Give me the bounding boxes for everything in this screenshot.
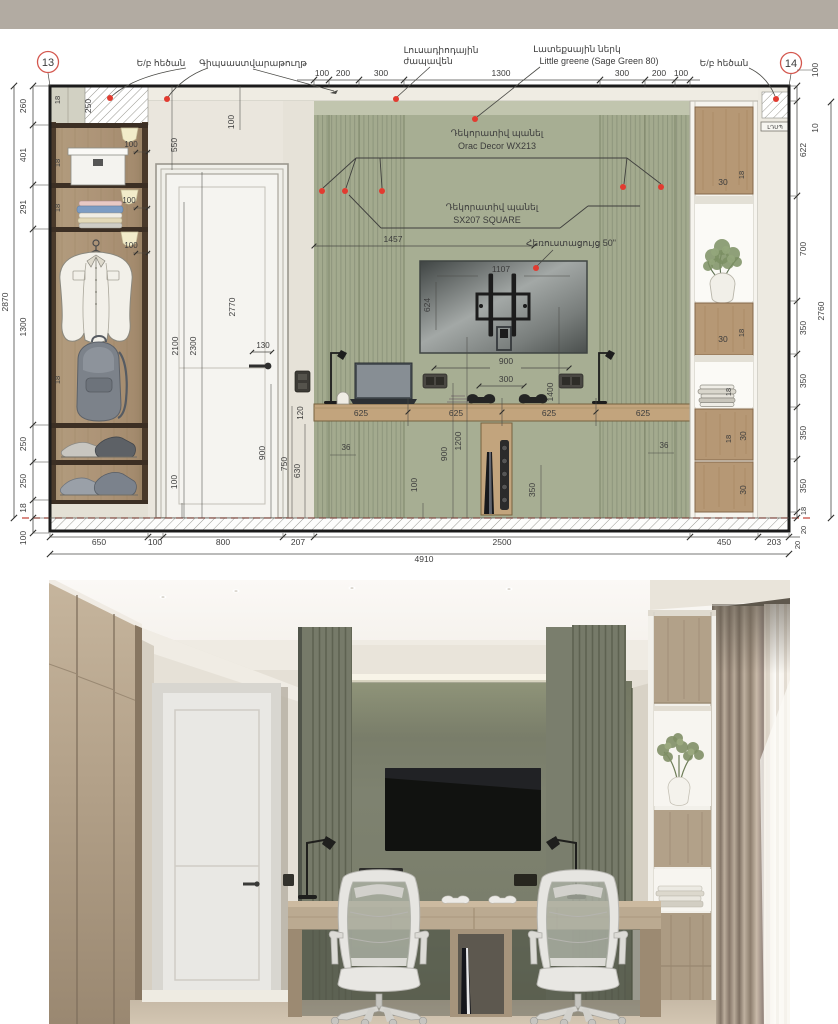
svg-text:Գիպսաստվարաթուղթ: Գիպսաստվարաթուղթ (199, 58, 307, 68)
svg-text:900: 900 (257, 446, 267, 460)
svg-text:250: 250 (83, 99, 93, 113)
svg-text:900: 900 (439, 447, 449, 461)
svg-text:1457: 1457 (384, 234, 403, 244)
svg-text:100: 100 (18, 531, 28, 545)
svg-text:2870: 2870 (0, 292, 10, 311)
svg-text:4910: 4910 (415, 554, 434, 564)
svg-text:130: 130 (256, 341, 270, 350)
svg-text:Լատեքսային ներկ: Լատեքսային ներկ (533, 44, 620, 54)
svg-text:30: 30 (718, 334, 728, 344)
svg-text:203: 203 (767, 537, 781, 547)
svg-text:30: 30 (738, 485, 748, 495)
svg-text:14: 14 (785, 58, 797, 70)
svg-text:13: 13 (42, 57, 54, 69)
svg-text:100: 100 (124, 140, 138, 149)
svg-text:Դեկորատիվ պանել: Դեկորատիվ պանել (446, 202, 539, 212)
svg-text:200: 200 (336, 68, 350, 78)
svg-text:18: 18 (53, 204, 62, 212)
svg-text:625: 625 (354, 408, 368, 418)
svg-text:750: 750 (279, 457, 289, 471)
svg-text:700: 700 (798, 242, 808, 256)
svg-text:300: 300 (374, 68, 388, 78)
svg-text:ժապավեն: ժապավեն (403, 56, 452, 66)
svg-text:18: 18 (53, 159, 62, 167)
svg-text:2300: 2300 (188, 336, 198, 355)
svg-text:200: 200 (652, 68, 666, 78)
svg-text:250: 250 (18, 474, 28, 488)
svg-text:550: 550 (169, 138, 179, 152)
svg-text:18: 18 (724, 435, 733, 443)
svg-text:Լուսադիոդային: Լուսադիոդային (404, 45, 479, 55)
svg-text:100: 100 (409, 478, 419, 492)
svg-text:625: 625 (636, 408, 650, 418)
svg-text:630: 630 (292, 464, 302, 478)
svg-text:625: 625 (449, 408, 463, 418)
svg-text:36: 36 (342, 443, 351, 452)
svg-text:350: 350 (798, 479, 808, 493)
svg-text:SX207 SQUARE: SX207 SQUARE (453, 215, 521, 225)
svg-text:1300: 1300 (492, 68, 511, 78)
svg-text:30: 30 (738, 431, 748, 441)
svg-text:800: 800 (216, 537, 230, 547)
svg-text:18: 18 (737, 171, 746, 179)
svg-text:120: 120 (296, 406, 305, 420)
svg-text:624: 624 (422, 298, 432, 312)
svg-text:1300: 1300 (18, 317, 28, 336)
svg-text:Դեկորատիվ պանել: Դեկորատիվ պանել (451, 128, 544, 138)
svg-text:100: 100 (315, 68, 329, 78)
svg-text:2500: 2500 (493, 537, 512, 547)
svg-text:300: 300 (615, 68, 629, 78)
svg-text:1107: 1107 (492, 264, 511, 274)
svg-text:100: 100 (148, 537, 162, 547)
svg-text:300: 300 (499, 374, 513, 384)
svg-text:Ե/բ հեծան: Ե/բ հեծան (700, 58, 749, 68)
svg-text:250: 250 (18, 437, 28, 451)
svg-text:625: 625 (542, 408, 556, 418)
svg-text:Little greene (Sage Green 80): Little greene (Sage Green 80) (539, 56, 658, 66)
svg-text:207: 207 (291, 537, 305, 547)
svg-text:350: 350 (798, 426, 808, 440)
svg-text:Orac Decor WX213: Orac Decor WX213 (458, 141, 536, 151)
svg-text:18: 18 (53, 376, 62, 384)
svg-text:100: 100 (124, 241, 138, 250)
svg-text:100: 100 (674, 68, 688, 78)
svg-text:18: 18 (724, 388, 733, 396)
svg-text:622: 622 (798, 143, 808, 157)
svg-text:2760: 2760 (816, 301, 826, 320)
svg-text:18: 18 (53, 96, 62, 104)
svg-text:1200: 1200 (453, 431, 463, 450)
svg-text:20: 20 (793, 541, 802, 549)
svg-text:18: 18 (799, 507, 808, 515)
svg-text:450: 450 (717, 537, 731, 547)
svg-text:260: 260 (18, 99, 28, 113)
svg-text:Հեռուստացույց 50": Հեռուստացույց 50" (526, 238, 616, 248)
svg-text:36: 36 (660, 441, 669, 450)
svg-text:291: 291 (18, 200, 28, 214)
svg-text:100: 100 (169, 475, 179, 489)
svg-text:1400: 1400 (545, 382, 555, 401)
svg-text:30: 30 (718, 177, 728, 187)
svg-text:10: 10 (810, 123, 820, 133)
svg-text:2770: 2770 (227, 297, 237, 316)
svg-text:900: 900 (499, 356, 513, 366)
svg-text:401: 401 (18, 148, 28, 162)
svg-text:350: 350 (527, 483, 537, 497)
svg-text:350: 350 (798, 374, 808, 388)
svg-text:350: 350 (798, 321, 808, 335)
svg-text:650: 650 (92, 537, 106, 547)
svg-text:100: 100 (122, 196, 136, 205)
svg-text:100: 100 (226, 115, 236, 129)
svg-text:ԼԴՍՊ: ԼԴՍՊ (767, 124, 783, 131)
svg-text:18: 18 (18, 503, 28, 513)
svg-text:18: 18 (737, 329, 746, 337)
svg-text:20: 20 (799, 526, 808, 534)
svg-text:Ե/բ հեծան: Ե/բ հեծան (137, 58, 186, 68)
svg-text:2100: 2100 (170, 336, 180, 355)
